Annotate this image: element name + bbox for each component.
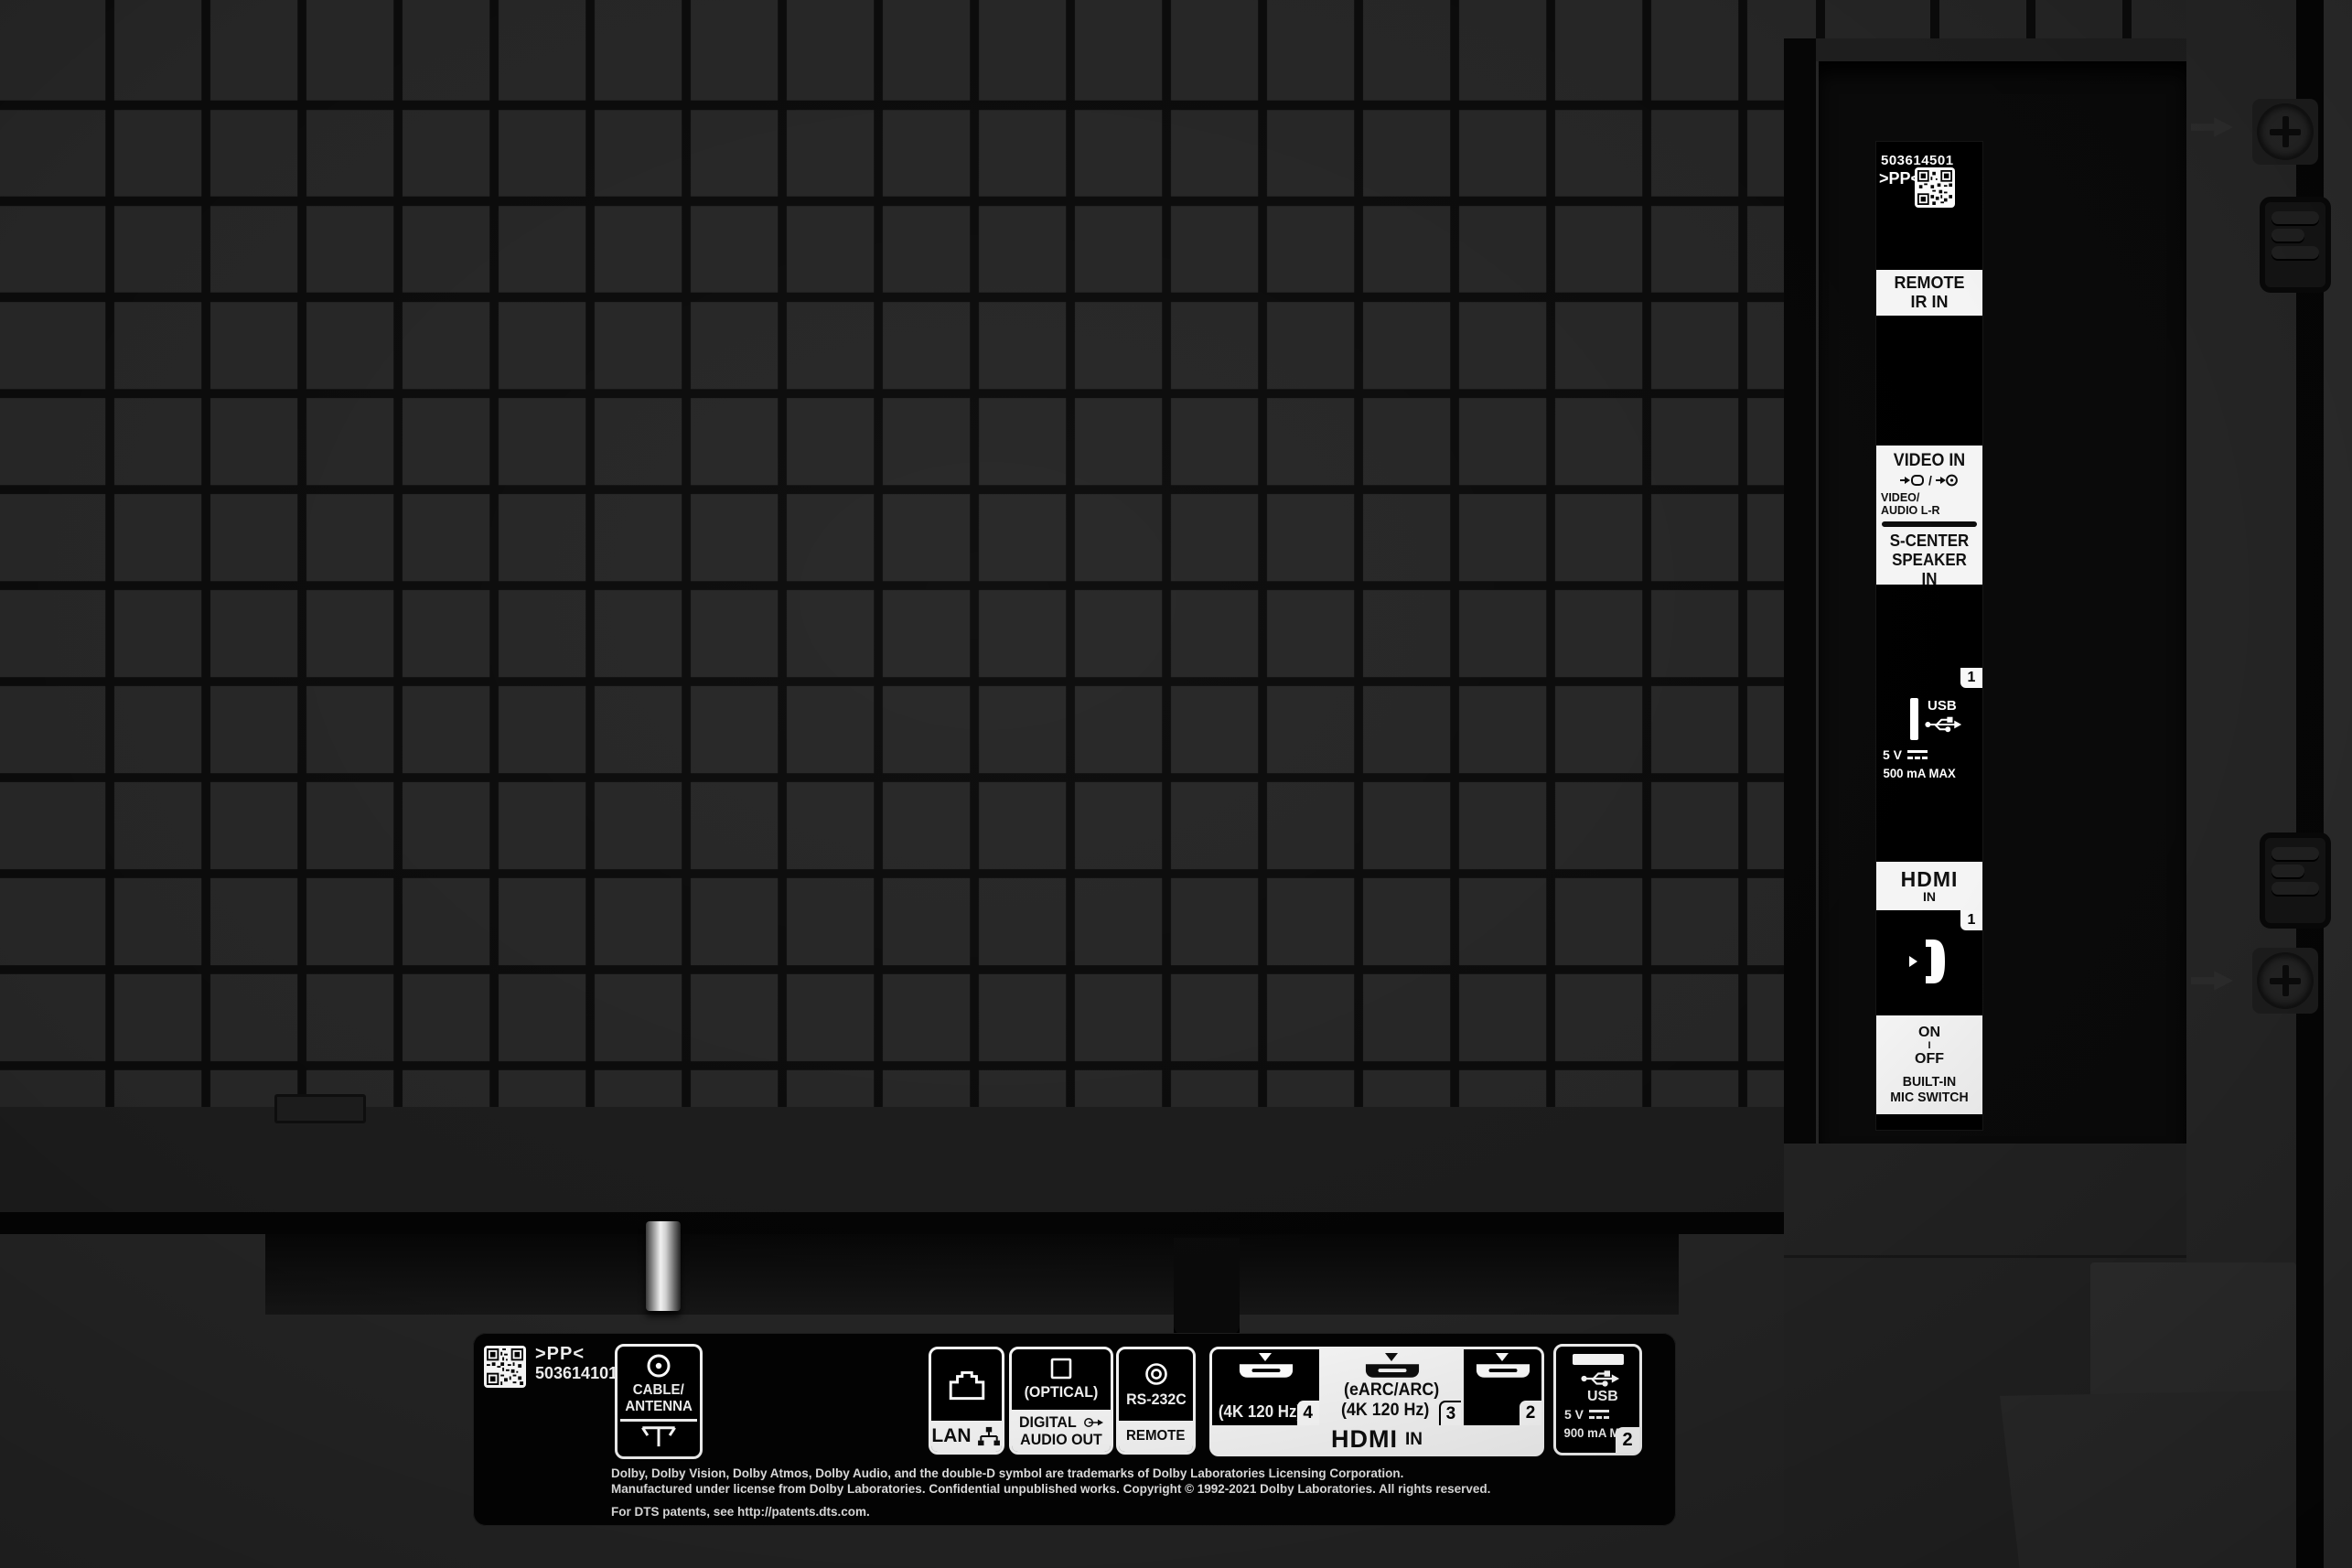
clip-rib [2271, 229, 2304, 242]
rs232c-label: RS-232C REMOTE [1116, 1347, 1196, 1455]
qr-code-pattern [1917, 170, 1952, 205]
usb-voltage-value: 5 V [1883, 747, 1902, 762]
hdmi-wordmark: HDMI [1876, 869, 1982, 890]
panel-shadow [0, 1212, 1784, 1234]
hdmi-plug-side-icon [1907, 936, 1955, 987]
mic-off-text: OFF [1876, 1051, 1982, 1067]
remote-text: REMOTE [1126, 1428, 1185, 1444]
down-arrow-icon [1385, 1353, 1398, 1361]
dts-legal-line: For DTS patents, see http://patents.dts.… [611, 1504, 870, 1520]
lan-label: LAN [929, 1347, 1004, 1455]
usb1-section: USB 5 V 500 mA MAX [1876, 691, 1982, 793]
coax-connector [646, 1221, 681, 1311]
clip-rib [2271, 865, 2304, 877]
clip-rib [2271, 882, 2319, 895]
cable-line1: CABLE/ [633, 1382, 684, 1399]
screw-head-icon [2259, 105, 2312, 158]
mic-label-line2: MIC SWITCH [1879, 1090, 1979, 1105]
optical-icon-area: (OPTICAL) [1012, 1349, 1111, 1410]
remote-ir-line2: IR IN [1876, 293, 1982, 312]
network-icon [976, 1426, 1002, 1446]
qr-code [484, 1346, 526, 1388]
connector-bay: 503614501 >PP< [1816, 61, 2186, 1144]
usb-icon [1580, 1369, 1620, 1389]
bottom-cover: >PP< 503614101 CABLE/ ANTENNA [0, 1234, 1784, 1568]
side-serial: 503614501 [1881, 153, 1954, 168]
video-audio-line1: VIDEO/ [1881, 491, 1978, 504]
video-input-icon [1900, 473, 1925, 488]
s-center-line2: SPEAKER IN [1884, 551, 1975, 589]
qr-code-pattern [487, 1348, 523, 1385]
qr-code [1915, 167, 1955, 208]
hdmi-port-3: (eARC/ARC) (4K 120 Hz) 3 [1322, 1349, 1461, 1425]
cable-clip-lower [2260, 832, 2331, 929]
hdmi-plug-icon [1364, 1363, 1421, 1379]
bay-gap [1784, 38, 1816, 1144]
digital-audio-out-label: (OPTICAL) DIGITAL AUDIO OUT [1009, 1347, 1113, 1455]
remote-band: REMOTE [1119, 1421, 1193, 1452]
pp-mark: >PP< [535, 1344, 585, 1365]
hdmi-port-2: 2 [1464, 1349, 1541, 1425]
usb-icon [1924, 714, 1962, 735]
hdmi-plug-icon [1475, 1363, 1531, 1379]
dolby-legal-line2: Manufactured under license from Dolby La… [611, 1481, 1490, 1497]
hdmi1-number: 1 [1960, 910, 1982, 930]
grille-bottom-band [0, 1107, 1784, 1212]
hdmi-in-label: HDMI IN [1876, 862, 1982, 910]
port-recess [265, 1234, 1679, 1315]
bay-lip [1816, 38, 2186, 61]
hdmi3-number: 3 [1439, 1401, 1461, 1425]
usb-slot [1573, 1354, 1624, 1365]
audio-out-icon [1083, 1415, 1105, 1430]
hdmi4-speed: (4K 120 Hz) [1219, 1402, 1302, 1422]
antenna-icon [639, 1424, 679, 1448]
frame-screw-top [2252, 99, 2318, 165]
down-arrow-icon [1496, 1353, 1509, 1361]
mic-switch-label: ON I OFF BUILT-IN MIC SWITCH [1876, 1015, 1982, 1114]
video-sep: / [1928, 473, 1932, 488]
usb-current: 500 mA MAX [1884, 766, 1956, 780]
bottom-label-panel: >PP< 503614101 CABLE/ ANTENNA [473, 1333, 1676, 1526]
tv-rear-panel: >PP< 503614101 CABLE/ ANTENNA [0, 0, 2352, 1568]
dolby-legal-line1: Dolby, Dolby Vision, Dolby Atmos, Dolby … [611, 1466, 1403, 1481]
hdmi3-earc: (eARC/ARC) [1326, 1380, 1456, 1401]
usb-text: USB [1587, 1389, 1618, 1405]
optical-text: (OPTICAL) [1025, 1383, 1099, 1402]
coax-socket-icon [645, 1352, 672, 1380]
dc-symbol [1907, 750, 1928, 760]
down-arrow-icon [1259, 1353, 1272, 1361]
clip-rib [2271, 246, 2319, 259]
lan-text: LAN [931, 1425, 971, 1447]
mic-label-line1: BUILT-IN [1879, 1074, 1979, 1090]
grille-notch [274, 1094, 366, 1123]
usb2-label: USB 5 V 900 mA MAX 2 [1553, 1344, 1642, 1455]
label-divider-bar [1882, 521, 1977, 527]
cable-clip [1174, 1238, 1240, 1340]
speaker-grille-top-strip [1784, 0, 2186, 38]
video-in-icons: / [1881, 473, 1978, 488]
hdmi-side-plug-icon [1907, 936, 1955, 987]
dc-symbol [1589, 1410, 1609, 1420]
clip-rib [2271, 847, 2319, 860]
cable-divider [620, 1419, 697, 1422]
rs232c-icon-area: RS-232C [1119, 1349, 1193, 1421]
hdmi-in-band: HDMI IN [1212, 1425, 1541, 1454]
mic-on-text: ON [1876, 1025, 1982, 1040]
usb-voltage-value: 5 V [1564, 1407, 1584, 1422]
cable-clip-top [2260, 197, 2331, 293]
usb2-number: 2 [1616, 1427, 1639, 1453]
stand-panel [2090, 1262, 2296, 1398]
lan-icon-area [931, 1349, 1002, 1421]
hdmi-plug-icon [1238, 1363, 1294, 1379]
digital-audio-band: DIGITAL AUDIO OUT [1012, 1410, 1111, 1452]
lan-port-icon [946, 1369, 988, 1402]
cable-antenna-label: CABLE/ ANTENNA [615, 1344, 703, 1459]
usb-voltage: 5 V [1564, 1407, 1609, 1422]
digital-text: DIGITAL [1019, 1413, 1077, 1431]
rs232c-text: RS-232C [1126, 1391, 1187, 1409]
hdmi3-speed: (4K 120 Hz) [1326, 1401, 1444, 1421]
clip-rib [2271, 211, 2319, 224]
audio-out-text: AUDIO OUT [1020, 1431, 1102, 1448]
hdmi-wordmark: HDMI [1331, 1425, 1398, 1454]
serial-number: 503614101 [535, 1364, 618, 1383]
lan-band: LAN [931, 1421, 1002, 1452]
s-center-line1: S-CENTER [1884, 532, 1975, 551]
hdmi-port-4: (4K 120 Hz) 4 [1212, 1349, 1319, 1425]
usb-voltage: 5 V [1883, 747, 1928, 762]
hdmi-in-text: IN [1405, 1430, 1423, 1450]
remote-ir-in-label: REMOTE IR IN [1876, 270, 1982, 316]
screw-head-icon [2259, 954, 2312, 1007]
video-audio-line2: AUDIO L-R [1881, 504, 1978, 517]
audio-input-icon [1936, 473, 1959, 488]
hdmi-in-text: IN [1876, 890, 1982, 904]
video-in-title: VIDEO IN [1884, 451, 1975, 471]
hdmi2-number: 2 [1520, 1401, 1541, 1425]
usb1-number: 1 [1960, 668, 1982, 688]
usb-slot [1910, 698, 1918, 740]
hdmi4-number: 4 [1297, 1401, 1319, 1425]
mic-separator: I [1876, 1040, 1982, 1051]
optical-icon [1050, 1358, 1072, 1380]
speaker-grille-panel [0, 0, 1784, 1107]
hdmi-group: (4K 120 Hz) 4 (eARC/ARC) (4K 120 Hz) 3 [1209, 1347, 1544, 1456]
remote-ir-line1: REMOTE [1876, 274, 1982, 293]
usb-text: USB [1928, 698, 1957, 714]
video-in-label: VIDEO IN / VIDEO/ AUDIO L-R S- [1876, 446, 1982, 585]
cable-line2: ANTENNA [625, 1399, 693, 1415]
side-label-strip: 503614501 >PP< [1876, 142, 1982, 1130]
frame-screw-bottom [2252, 948, 2318, 1014]
minijack-icon [1144, 1361, 1169, 1387]
